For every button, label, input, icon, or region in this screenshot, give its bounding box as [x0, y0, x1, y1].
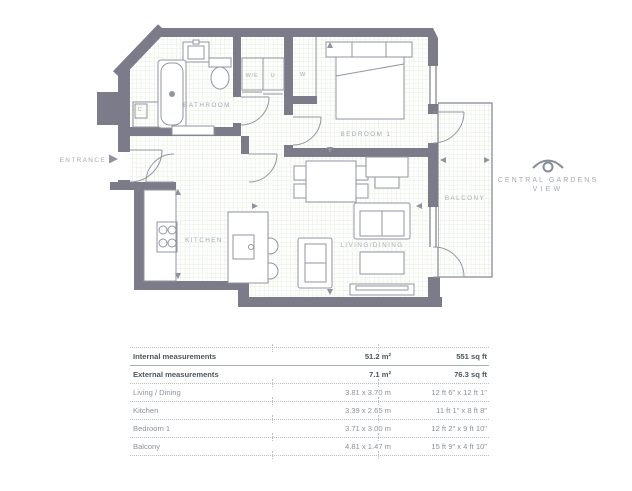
- bedroom-label: BEDROOM 1: [341, 131, 392, 138]
- row-imperial: 12 ft 2" x 9 ft 10": [391, 424, 489, 433]
- row-metric: 4.81 x 1.47 m: [273, 442, 391, 451]
- logo-line2: VIEW: [492, 186, 604, 193]
- table-row: Internal measurements 51.2 m² 551 sq ft: [130, 348, 489, 366]
- balcony-floor: [438, 103, 492, 277]
- floorplan-page: BATHROOM BEDROOM 1 KITCHEN LIVING/DINING…: [0, 0, 632, 491]
- desk: [366, 157, 408, 177]
- dining-chair: [294, 184, 306, 198]
- row-label: Balcony: [130, 442, 273, 451]
- closet-we-label: W/E: [246, 73, 259, 79]
- row-metric: 3.39 x 2.65 m: [273, 406, 391, 415]
- table-row: Bedroom 1 3.71 x 3.00 m 12 ft 2" x 9 ft …: [130, 420, 489, 438]
- row-metric: 3.71 x 3.00 m: [273, 424, 391, 433]
- living-label: LIVING/DINING: [340, 242, 403, 249]
- island: [228, 212, 268, 283]
- drain-icon: [169, 91, 175, 97]
- wardrobe-label: W: [300, 72, 306, 78]
- row-label: Bedroom 1: [130, 424, 273, 433]
- row-imperial: 551 sq ft: [391, 352, 489, 361]
- development-logo: CENTRAL GARDENS VIEW: [492, 152, 604, 193]
- row-imperial: 12 ft 6" x 12 ft 1": [391, 388, 489, 397]
- table-row: Balcony 4.81 x 1.47 m 15 ft 9" x 4 ft 10…: [130, 438, 489, 456]
- dining-table: [306, 161, 356, 202]
- row-metric: 3.81 x 3.70 m: [273, 388, 391, 397]
- entrance-arrow-icon: [109, 155, 118, 164]
- headboard-units: [326, 42, 412, 57]
- row-label: Kitchen: [130, 406, 273, 415]
- table-row: External measurements 7.1 m² 76.3 sq ft: [130, 366, 489, 384]
- dining-chair: [356, 184, 368, 198]
- bedroom-furniture: [326, 42, 412, 119]
- coffee-table: [360, 252, 404, 274]
- measurements-table: Internal measurements 51.2 m² 551 sq ft …: [130, 347, 489, 456]
- row-metric: 7.1 m²: [273, 370, 391, 379]
- row-metric: 51.2 m²: [273, 352, 391, 361]
- row-imperial: 11 ft 1" x 8 ft 8": [391, 406, 489, 415]
- logo-line1: CENTRAL GARDENS: [492, 177, 604, 184]
- table-row: Living / Dining 3.81 x 3.70 m 12 ft 6" x…: [130, 384, 489, 402]
- eye-icon: [529, 152, 567, 174]
- closet-u-label: U: [271, 73, 276, 79]
- kitchen-label: KITCHEN: [185, 237, 223, 244]
- balcony-label: BALCONY: [445, 195, 485, 202]
- radiator: [172, 126, 214, 135]
- row-label: External measurements: [130, 370, 273, 379]
- table-row: Kitchen 3.39 x 2.65 m 11 ft 1" x 8 ft 8": [130, 402, 489, 420]
- kitchen-counter: [144, 190, 176, 281]
- bathroom-label: BATHROOM: [183, 102, 231, 109]
- row-imperial: 15 ft 9" x 4 ft 10": [391, 442, 489, 451]
- dining-chair: [294, 166, 306, 180]
- toilet: [209, 58, 231, 67]
- closet-c-label: C: [138, 107, 143, 113]
- row-label: Living / Dining: [130, 388, 273, 397]
- desk-chair: [375, 177, 399, 188]
- entrance-label: ENTRANCE: [60, 157, 106, 164]
- row-imperial: 76.3 sq ft: [391, 370, 489, 379]
- row-label: Internal measurements: [130, 352, 273, 361]
